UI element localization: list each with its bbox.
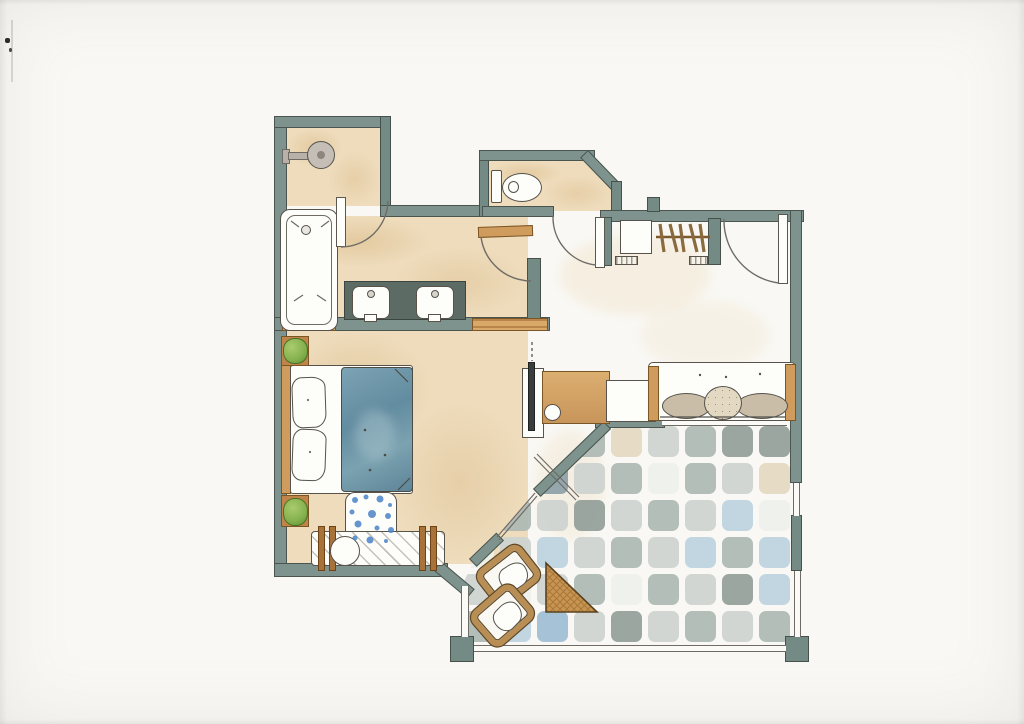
terrace-post-right: [785, 636, 809, 662]
terrace-window-bottom: [474, 645, 786, 652]
terrace-tile: [648, 537, 679, 568]
terrace-tile: [574, 500, 605, 531]
terrace-window-right-2: [794, 571, 801, 637]
terrace-tile: [685, 574, 716, 605]
terrace-tile: [537, 500, 568, 531]
terrace-tile: [685, 500, 716, 531]
terrace-tile: [722, 463, 753, 494]
terrace-window-right-1: [793, 483, 800, 516]
sofa-arm-left: [648, 366, 659, 421]
terrace-tile: [722, 537, 753, 568]
terrace-tile: [537, 611, 568, 642]
terrace-tile: [722, 574, 753, 605]
wall-wc-top: [479, 150, 595, 161]
sink-right-faucet: [431, 290, 439, 298]
bench-round-seat: [330, 536, 360, 566]
terrace-tile: [685, 426, 716, 457]
terrace-tile: [574, 463, 605, 494]
terrace-tile: [537, 574, 568, 605]
bed-pillow-bottom: [291, 428, 327, 481]
terrace-tile: [611, 426, 642, 457]
shoe-shelf-left: [615, 256, 638, 265]
floor-plan: [0, 0, 1024, 724]
terrace-tile: [648, 574, 679, 605]
wc-door-leaf: [595, 217, 605, 268]
sink-left-faucet: [367, 290, 375, 298]
terrace-tile: [722, 500, 753, 531]
wall-corridor-top: [380, 205, 482, 217]
terrace-tile: [537, 537, 568, 568]
shower-room-floor: [286, 128, 381, 206]
terrace-tile: [759, 500, 790, 531]
bench-strap: [318, 526, 325, 571]
bathtub-faucet: [301, 225, 311, 235]
terrace-tile: [759, 537, 790, 568]
wall-closet-left-stub: [604, 217, 612, 266]
wall-shower-top: [274, 116, 391, 128]
terrace-tile: [648, 463, 679, 494]
wall-shaft-stub: [647, 197, 660, 212]
plant-bottom-icon: [283, 498, 308, 526]
terrace-tile: [611, 574, 642, 605]
wood-threshold-right: [472, 318, 548, 331]
shower-head-center: [317, 151, 325, 159]
terrace-tile: [759, 574, 790, 605]
toilet-bowl-inner: [508, 181, 519, 193]
terrace-tile: [759, 426, 790, 457]
sofa-bolster-right: [736, 393, 788, 419]
terrace-tile: [685, 463, 716, 494]
tv-icon: [528, 362, 535, 431]
terrace-tile: [611, 611, 642, 642]
scanned-paper: [0, 0, 1024, 724]
terrace-tile: [611, 500, 642, 531]
desk-stool: [544, 404, 561, 421]
terrace-tile: [685, 537, 716, 568]
terrace-tile: [759, 463, 790, 494]
bench-strap: [419, 526, 426, 571]
terrace-tile: [685, 611, 716, 642]
entrance-door-arc: [724, 219, 779, 283]
wall-right: [790, 210, 802, 483]
hanger-icon: [700, 224, 704, 252]
shower-door-leaf: [336, 197, 346, 247]
wall-terrace-pier: [791, 515, 802, 571]
wall-closet-divider: [708, 218, 721, 265]
sofa-round-pillow: [704, 386, 742, 420]
sink-left-drain: [364, 314, 377, 322]
bed-pillow-top: [291, 376, 327, 428]
wall-wc-bottom: [482, 206, 554, 217]
terrace-tile: [574, 574, 605, 605]
terrace-tile: [648, 611, 679, 642]
terrace-post-left: [450, 636, 474, 662]
sofa-arm-right: [785, 364, 796, 421]
wall-wc-right: [611, 181, 622, 213]
terrace-tile: [574, 611, 605, 642]
toilet-tank: [491, 170, 502, 203]
wall-shower-right: [380, 116, 391, 216]
shoe-shelf-right: [689, 256, 708, 265]
sink-right-drain: [428, 314, 441, 322]
duvet-highlight: [355, 410, 395, 460]
plant-top-icon: [283, 338, 308, 364]
terrace-tile: [611, 537, 642, 568]
terrace-tile: [722, 426, 753, 457]
hall-watercolor-wash: [640, 300, 770, 370]
terrace-tile: [722, 611, 753, 642]
entrance-door-leaf: [778, 214, 788, 284]
bench-strap: [430, 526, 437, 571]
terrace-window-left: [461, 586, 469, 637]
corridor-door-leaf: [478, 225, 533, 238]
terrace-tile: [611, 463, 642, 494]
terrace-tile: [574, 537, 605, 568]
closet-shelf-box: [620, 220, 652, 254]
terrace-tile: [648, 426, 679, 457]
terrace-tile: [648, 500, 679, 531]
